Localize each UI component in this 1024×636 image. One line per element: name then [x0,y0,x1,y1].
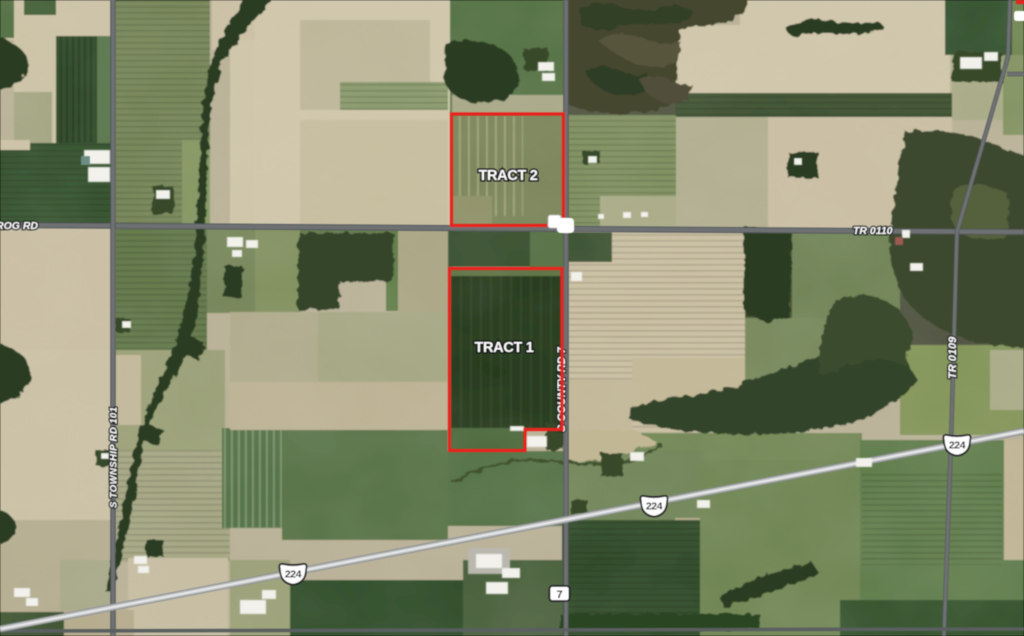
svg-text:224: 224 [646,500,663,512]
svg-text:7: 7 [556,589,562,601]
svg-text:TRACT 2: TRACT 2 [478,168,537,184]
svg-text:ROG RD: ROG RD [0,220,38,232]
svg-text:TRACT 1: TRACT 1 [474,340,533,356]
svg-text:224: 224 [949,439,966,451]
svg-text:TR 0110: TR 0110 [853,225,893,237]
svg-text:S TOWNSHIP RD 101: S TOWNSHIP RD 101 [109,407,120,508]
svg-text:224: 224 [285,568,302,580]
svg-text:TR 0109: TR 0109 [947,336,959,379]
